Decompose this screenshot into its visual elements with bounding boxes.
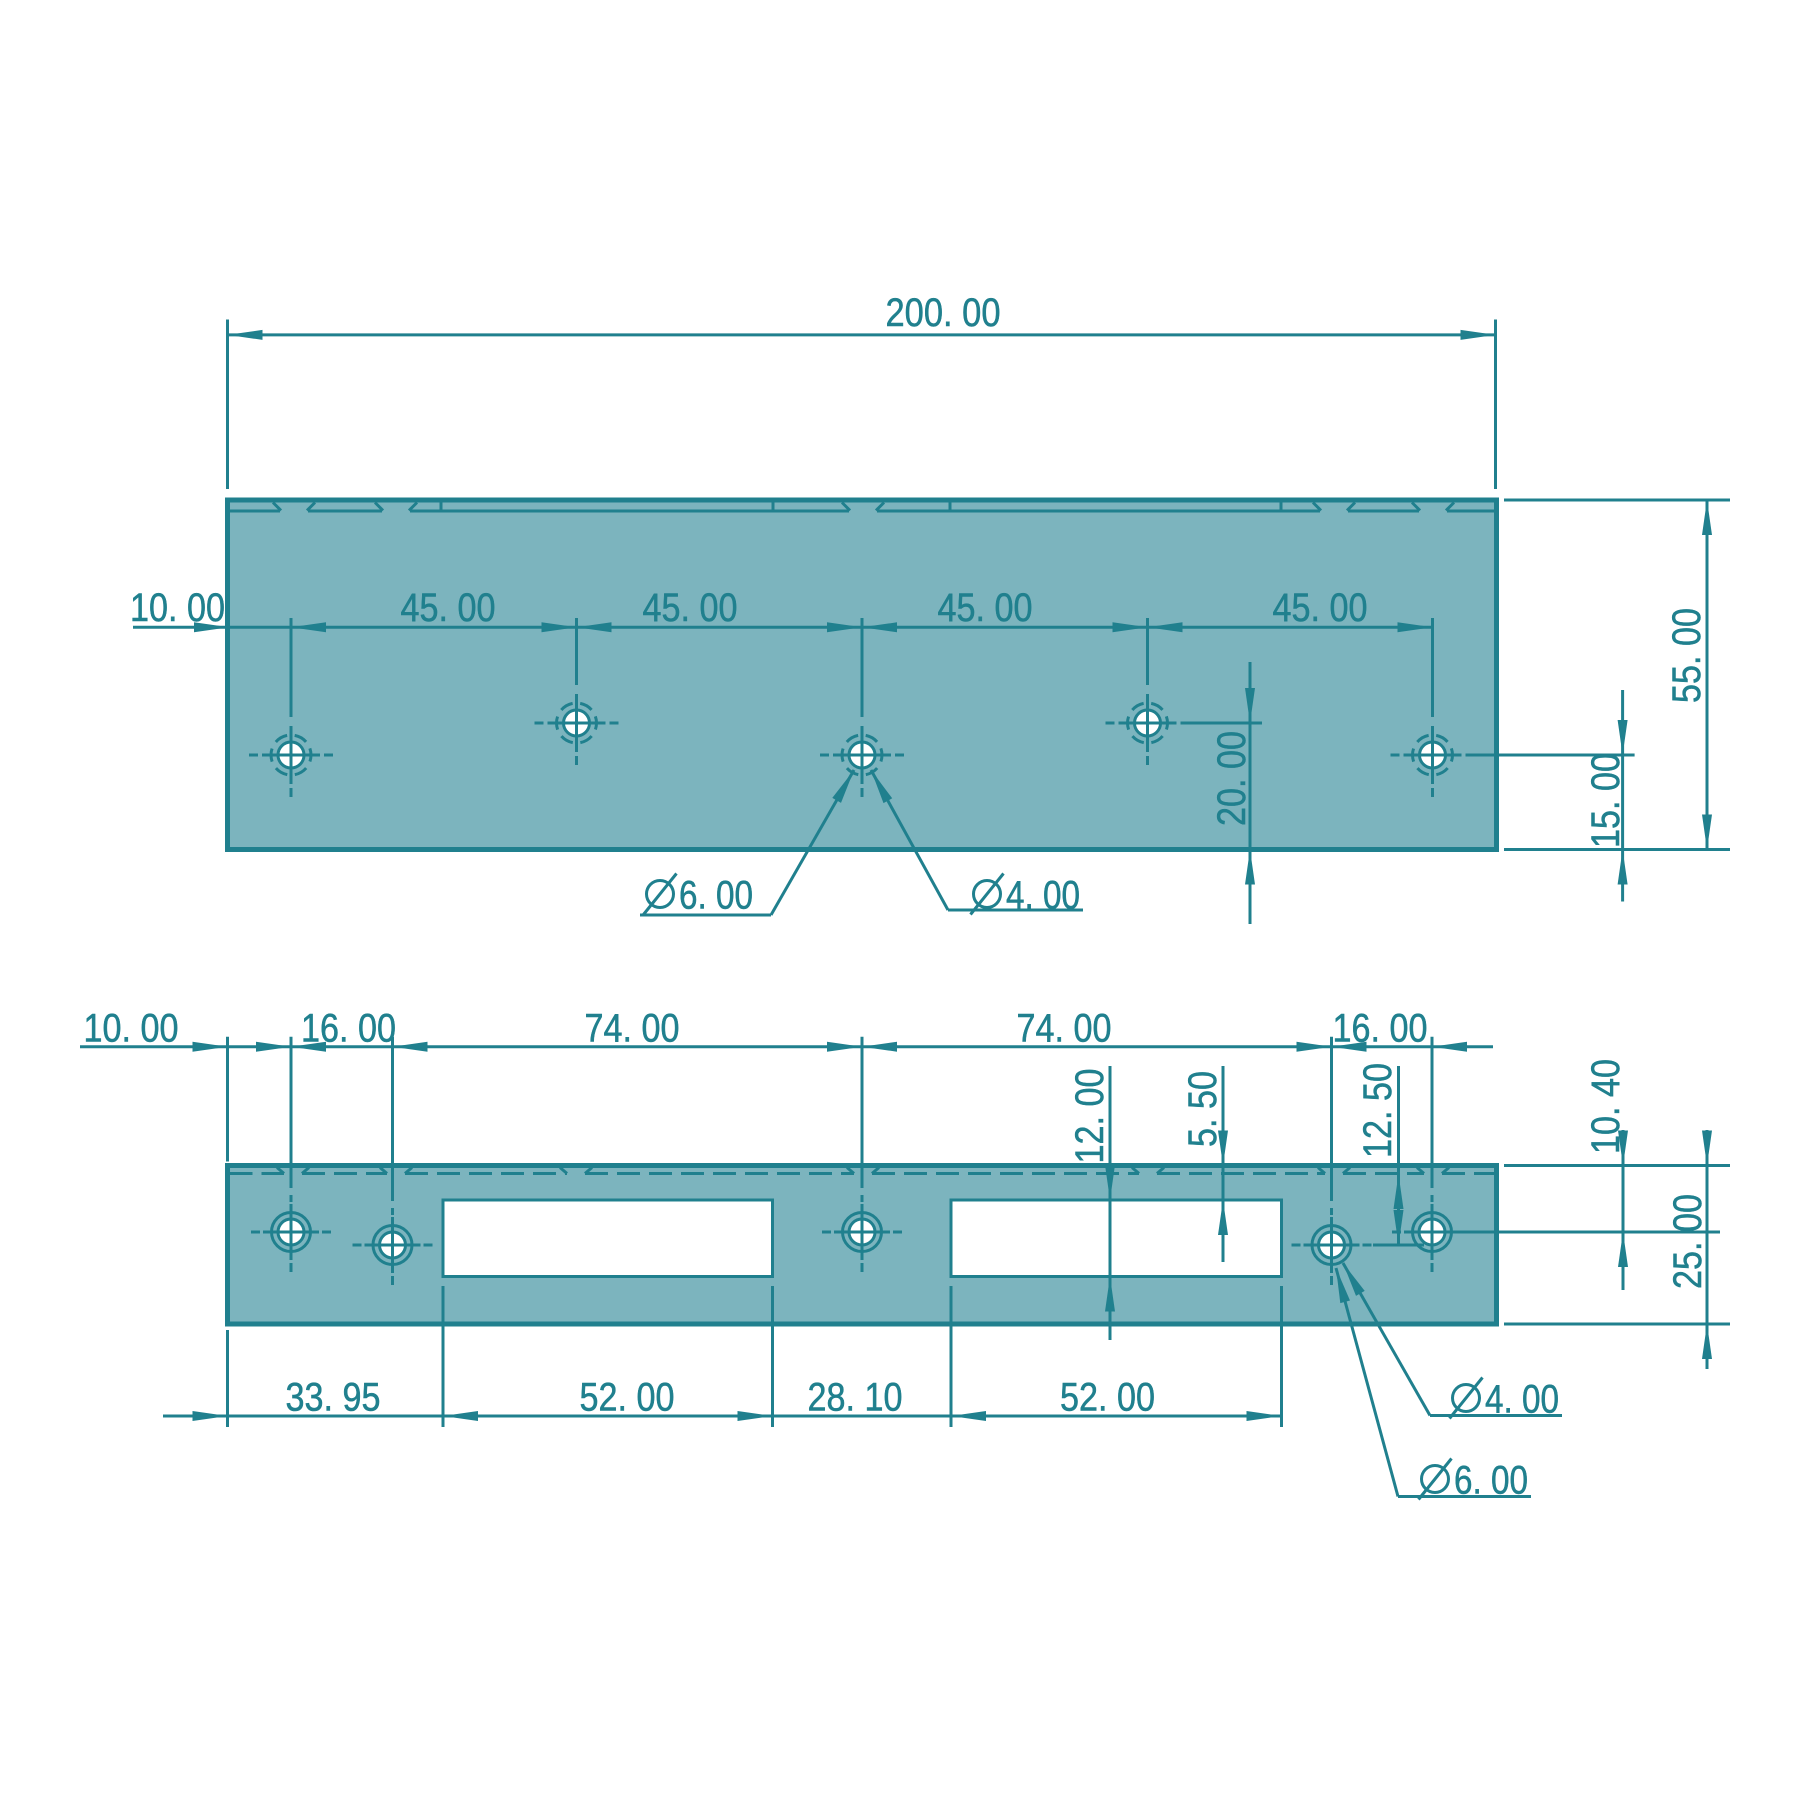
svg-text:52. 00: 52. 00 xyxy=(580,1376,675,1420)
svg-text:28. 10: 28. 10 xyxy=(808,1376,903,1420)
svg-text:74. 00: 74. 00 xyxy=(585,1007,680,1051)
svg-text:4. 00: 4. 00 xyxy=(1006,874,1080,918)
svg-text:25. 00: 25. 00 xyxy=(1666,1194,1710,1289)
svg-text:10. 40: 10. 40 xyxy=(1584,1059,1628,1154)
svg-text:55. 00: 55. 00 xyxy=(1665,608,1709,703)
svg-text:12. 00: 12. 00 xyxy=(1068,1069,1112,1164)
svg-text:15. 00: 15. 00 xyxy=(1584,753,1628,848)
svg-text:16. 00: 16. 00 xyxy=(301,1007,396,1051)
svg-text:16. 00: 16. 00 xyxy=(1333,1007,1428,1051)
svg-text:6. 00: 6. 00 xyxy=(679,874,753,918)
svg-text:12. 50: 12. 50 xyxy=(1356,1063,1400,1158)
svg-text:45. 00: 45. 00 xyxy=(643,586,738,630)
svg-text:10. 00: 10. 00 xyxy=(84,1007,179,1051)
svg-text:5. 50: 5. 50 xyxy=(1181,1071,1225,1147)
svg-text:10. 00: 10. 00 xyxy=(130,586,225,630)
svg-text:20. 00: 20. 00 xyxy=(1210,731,1254,826)
svg-text:6. 00: 6. 00 xyxy=(1454,1459,1528,1503)
svg-text:33. 95: 33. 95 xyxy=(286,1376,381,1420)
svg-text:52. 00: 52. 00 xyxy=(1060,1376,1155,1420)
svg-text:45. 00: 45. 00 xyxy=(938,586,1033,630)
svg-text:45. 00: 45. 00 xyxy=(401,586,496,630)
svg-text:45. 00: 45. 00 xyxy=(1273,586,1368,630)
svg-text:74. 00: 74. 00 xyxy=(1017,1007,1112,1051)
svg-text:200. 00: 200. 00 xyxy=(886,291,1001,335)
svg-text:4. 00: 4. 00 xyxy=(1485,1378,1559,1422)
